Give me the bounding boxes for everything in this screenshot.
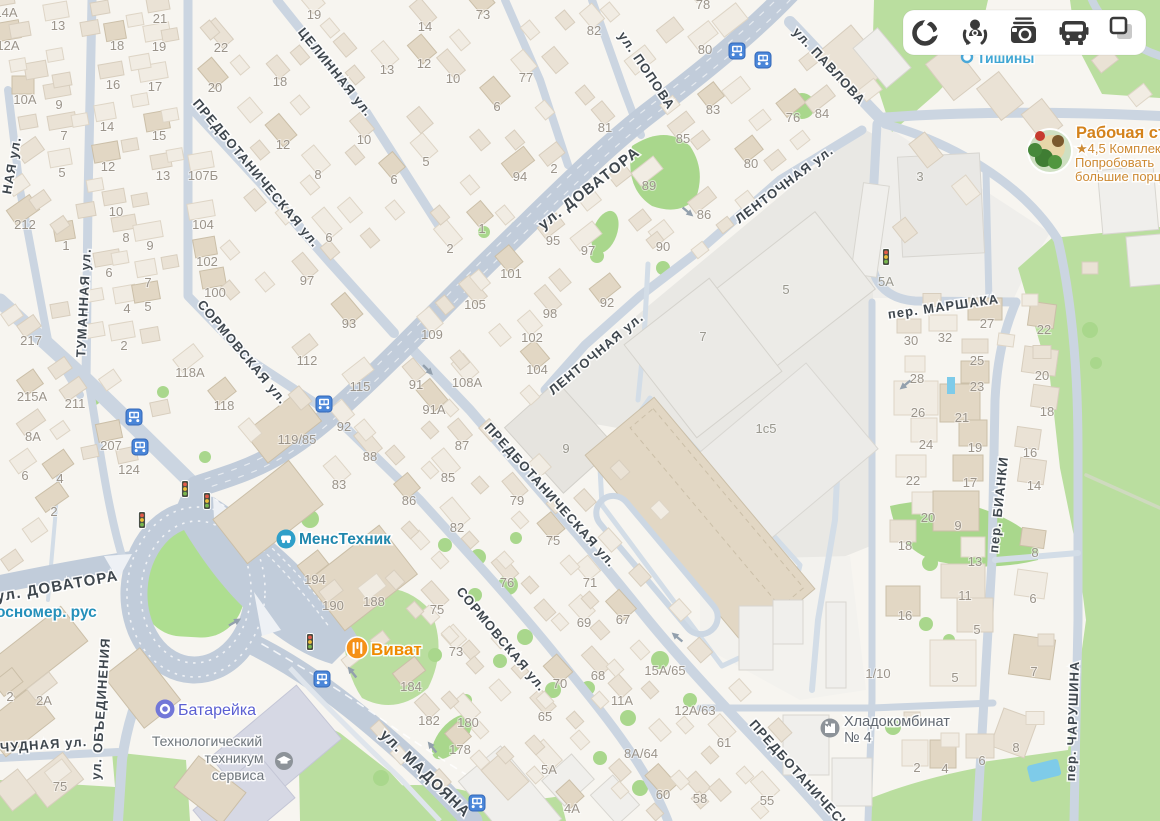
svg-text:207: 207 — [100, 438, 122, 453]
svg-text:5: 5 — [951, 670, 958, 685]
svg-text:182: 182 — [418, 713, 440, 728]
svg-text:19: 19 — [152, 39, 166, 54]
svg-text:13: 13 — [380, 62, 394, 77]
svg-text:70: 70 — [553, 676, 567, 691]
svg-text:10: 10 — [109, 204, 123, 219]
svg-text:22: 22 — [1037, 322, 1051, 337]
svg-text:119/85: 119/85 — [278, 432, 317, 447]
svg-text:22: 22 — [214, 40, 228, 55]
svg-text:5: 5 — [973, 622, 980, 637]
svg-text:73: 73 — [476, 7, 490, 22]
svg-text:9: 9 — [55, 97, 62, 112]
svg-text:23: 23 — [970, 379, 984, 394]
svg-text:осномер. рус: осномер. рус — [0, 604, 97, 621]
svg-text:58: 58 — [693, 791, 707, 806]
svg-text:88: 88 — [363, 449, 377, 464]
svg-text:14: 14 — [418, 19, 432, 34]
svg-text:7: 7 — [699, 329, 706, 344]
svg-text:91А: 91А — [422, 402, 445, 417]
svg-text:92: 92 — [600, 295, 614, 310]
svg-text:Батарейка: Батарейка — [178, 702, 256, 719]
svg-text:78: 78 — [696, 0, 710, 12]
svg-text:12А: 12А — [0, 38, 20, 53]
svg-text:2: 2 — [120, 338, 127, 353]
svg-text:12: 12 — [276, 137, 290, 152]
svg-text:Виват: Виват — [371, 640, 422, 659]
svg-text:МенсТехник: МенсТехник — [299, 531, 391, 548]
svg-text:8А/64: 8А/64 — [624, 746, 658, 761]
svg-text:85: 85 — [676, 131, 690, 146]
svg-text:124: 124 — [118, 462, 140, 477]
svg-text:65: 65 — [538, 709, 552, 724]
svg-text:97: 97 — [581, 243, 595, 258]
svg-text:большие порци: большие порци — [1075, 169, 1160, 184]
svg-text:14: 14 — [1027, 478, 1041, 493]
svg-text:109: 109 — [421, 327, 443, 342]
svg-text:211: 211 — [65, 396, 86, 411]
svg-text:6: 6 — [21, 468, 28, 483]
svg-text:32: 32 — [938, 330, 952, 345]
svg-text:68: 68 — [591, 668, 605, 683]
svg-text:24: 24 — [919, 437, 933, 452]
svg-text:75: 75 — [53, 779, 67, 794]
svg-text:77: 77 — [519, 70, 533, 85]
svg-text:79: 79 — [510, 493, 524, 508]
svg-text:8: 8 — [314, 167, 321, 182]
svg-text:90: 90 — [656, 239, 670, 254]
svg-text:86: 86 — [402, 493, 416, 508]
svg-text:техникум: техникум — [204, 750, 263, 766]
svg-text:20: 20 — [1035, 368, 1049, 383]
svg-text:★4,5 Комплекс: ★4,5 Комплекс — [1076, 141, 1160, 156]
svg-text:2: 2 — [50, 504, 57, 519]
svg-text:4: 4 — [56, 471, 63, 486]
svg-text:178: 178 — [449, 742, 471, 757]
svg-text:21: 21 — [153, 11, 167, 26]
svg-text:67: 67 — [616, 612, 630, 627]
svg-text:73: 73 — [449, 644, 463, 659]
svg-text:95: 95 — [546, 233, 560, 248]
svg-text:7: 7 — [144, 275, 151, 290]
svg-text:№ 4: № 4 — [844, 730, 872, 746]
svg-text:2А: 2А — [36, 693, 52, 708]
svg-text:15А/65: 15А/65 — [644, 663, 685, 678]
svg-text:76: 76 — [500, 575, 514, 590]
svg-text:19: 19 — [307, 7, 321, 22]
svg-text:13: 13 — [968, 554, 982, 569]
svg-text:13: 13 — [156, 168, 170, 183]
svg-text:16: 16 — [106, 77, 120, 92]
svg-text:92: 92 — [337, 419, 351, 434]
svg-text:91: 91 — [409, 377, 423, 392]
svg-text:9: 9 — [954, 518, 961, 533]
svg-text:118: 118 — [214, 398, 235, 413]
svg-text:6: 6 — [493, 99, 500, 114]
svg-text:10: 10 — [446, 71, 460, 86]
svg-text:60: 60 — [656, 787, 670, 802]
svg-text:16: 16 — [898, 608, 912, 623]
svg-text:83: 83 — [332, 477, 346, 492]
svg-text:215А: 215А — [17, 389, 48, 404]
svg-text:25: 25 — [970, 353, 984, 368]
svg-text:80: 80 — [698, 42, 712, 57]
svg-text:82: 82 — [450, 520, 464, 535]
svg-text:13: 13 — [51, 18, 65, 33]
svg-text:18: 18 — [110, 38, 124, 53]
svg-text:104: 104 — [526, 362, 548, 377]
svg-text:6: 6 — [978, 753, 985, 768]
svg-text:11А: 11А — [611, 693, 633, 708]
svg-text:89: 89 — [642, 178, 656, 193]
svg-text:84: 84 — [815, 106, 829, 121]
svg-text:83: 83 — [706, 102, 720, 117]
svg-text:75: 75 — [430, 602, 444, 617]
svg-text:1: 1 — [478, 221, 485, 236]
svg-text:180: 180 — [457, 715, 479, 730]
svg-text:14А: 14А — [0, 5, 18, 20]
svg-text:17: 17 — [148, 79, 162, 94]
svg-text:7: 7 — [1030, 664, 1037, 679]
svg-text:5: 5 — [58, 165, 65, 180]
svg-text:6: 6 — [1029, 591, 1036, 606]
svg-text:108А: 108А — [452, 375, 483, 390]
svg-text:Хладокомбинат: Хладокомбинат — [844, 714, 950, 730]
svg-text:5: 5 — [422, 154, 429, 169]
svg-text:93: 93 — [342, 316, 356, 331]
svg-text:Рабочая сто: Рабочая сто — [1076, 124, 1160, 142]
svg-text:4А: 4А — [564, 801, 580, 816]
svg-text:9: 9 — [562, 441, 569, 456]
svg-text:2: 2 — [6, 689, 13, 704]
svg-text:2: 2 — [446, 241, 453, 256]
svg-text:сервиса: сервиса — [212, 767, 265, 783]
svg-text:81: 81 — [598, 120, 612, 135]
svg-text:69: 69 — [577, 615, 591, 630]
svg-text:2: 2 — [913, 760, 920, 775]
svg-text:82: 82 — [587, 23, 601, 38]
svg-text:105: 105 — [464, 297, 486, 312]
svg-text:10: 10 — [357, 132, 371, 147]
svg-text:107Б: 107Б — [188, 168, 218, 183]
svg-text:8: 8 — [1012, 740, 1019, 755]
svg-text:12: 12 — [417, 56, 431, 71]
svg-text:8А: 8А — [25, 429, 41, 444]
svg-text:Технологический: Технологический — [152, 733, 262, 749]
svg-text:190: 190 — [322, 598, 344, 613]
svg-text:55: 55 — [760, 793, 774, 808]
svg-text:85: 85 — [441, 470, 455, 485]
svg-text:18: 18 — [898, 538, 912, 553]
svg-text:6: 6 — [105, 265, 112, 280]
svg-text:217: 217 — [20, 333, 42, 348]
svg-text:97: 97 — [300, 273, 314, 288]
svg-text:9: 9 — [146, 238, 153, 253]
svg-text:15: 15 — [152, 128, 166, 143]
svg-text:118А: 118А — [175, 365, 205, 380]
svg-text:18: 18 — [273, 74, 287, 89]
svg-text:5А: 5А — [878, 274, 894, 289]
svg-text:112: 112 — [297, 353, 318, 368]
svg-text:87: 87 — [455, 438, 469, 453]
svg-text:188: 188 — [363, 594, 385, 609]
svg-text:22: 22 — [906, 473, 920, 488]
svg-text:8: 8 — [122, 230, 129, 245]
svg-text:3: 3 — [916, 169, 923, 184]
svg-text:76: 76 — [786, 110, 800, 125]
svg-text:86: 86 — [697, 207, 711, 222]
svg-text:104: 104 — [192, 217, 214, 232]
svg-text:Попробовать: Попробовать — [1075, 155, 1154, 170]
svg-text:102: 102 — [521, 330, 543, 345]
svg-text:11: 11 — [958, 588, 972, 603]
svg-text:12: 12 — [101, 159, 115, 174]
svg-text:115: 115 — [350, 379, 371, 394]
svg-text:1/10: 1/10 — [865, 666, 890, 681]
svg-text:4: 4 — [941, 761, 948, 776]
svg-text:8: 8 — [1031, 545, 1038, 560]
svg-text:184: 184 — [400, 679, 422, 694]
svg-text:27: 27 — [980, 316, 994, 331]
svg-text:17: 17 — [963, 475, 977, 490]
svg-text:10А: 10А — [13, 92, 36, 107]
svg-text:21: 21 — [955, 410, 969, 425]
svg-text:75: 75 — [546, 533, 560, 548]
svg-text:101: 101 — [500, 266, 522, 281]
svg-text:194: 194 — [304, 572, 326, 587]
svg-text:20: 20 — [208, 80, 222, 95]
svg-text:19: 19 — [968, 440, 982, 455]
svg-text:1с5: 1с5 — [756, 421, 777, 436]
svg-text:61: 61 — [717, 735, 731, 750]
svg-text:20: 20 — [921, 510, 935, 525]
svg-text:71: 71 — [583, 575, 597, 590]
svg-text:5А: 5А — [541, 762, 557, 777]
svg-text:212: 212 — [14, 217, 36, 232]
svg-text:1: 1 — [62, 238, 69, 253]
svg-text:2: 2 — [550, 161, 557, 176]
svg-text:7: 7 — [60, 128, 67, 143]
svg-text:28: 28 — [910, 371, 924, 386]
svg-text:94: 94 — [513, 169, 527, 184]
svg-text:4: 4 — [123, 301, 130, 316]
svg-text:30: 30 — [904, 333, 918, 348]
svg-text:14: 14 — [100, 119, 114, 134]
svg-text:98: 98 — [543, 306, 557, 321]
svg-text:80: 80 — [744, 156, 758, 171]
svg-text:16: 16 — [1023, 445, 1037, 460]
svg-text:5: 5 — [144, 299, 151, 314]
svg-text:26: 26 — [911, 405, 925, 420]
svg-text:102: 102 — [196, 254, 218, 269]
svg-text:5: 5 — [782, 282, 789, 297]
svg-text:12А/63: 12А/63 — [674, 703, 715, 718]
svg-text:6: 6 — [390, 172, 397, 187]
svg-text:18: 18 — [1040, 404, 1054, 419]
svg-text:6: 6 — [325, 230, 332, 245]
